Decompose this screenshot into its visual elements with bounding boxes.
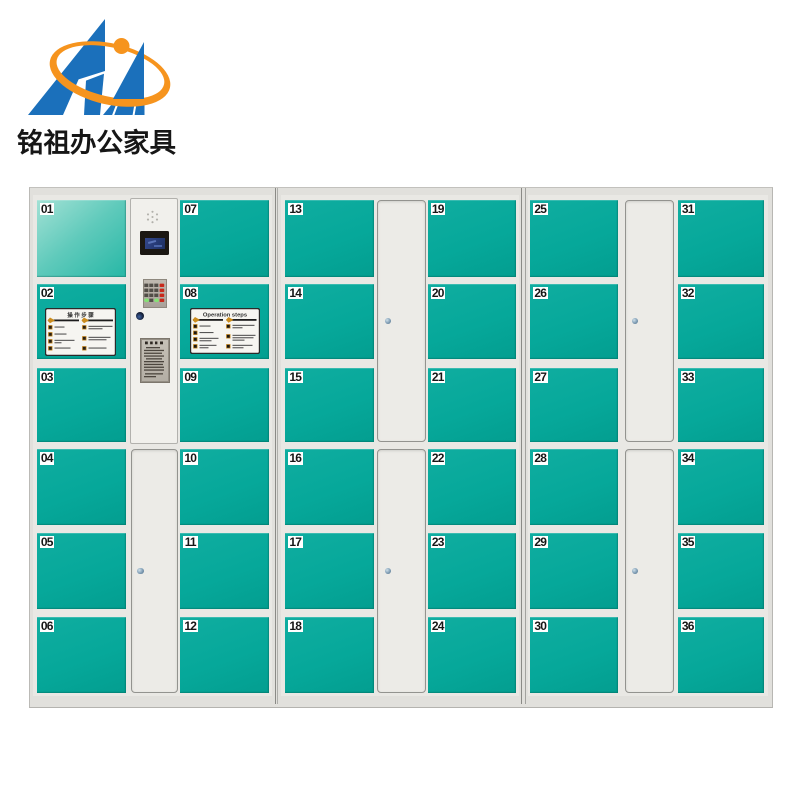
svg-text:操 作 步 骤: 操 作 步 骤 [67, 311, 94, 319]
svg-text:Operation steps: Operation steps [203, 313, 247, 319]
